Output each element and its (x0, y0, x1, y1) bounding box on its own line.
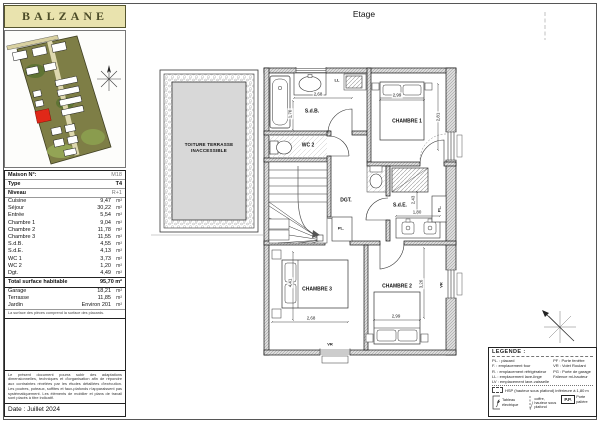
room-label-chambre3: CHAMBRE 3 (301, 287, 333, 293)
table-row: Dgt.4,49m² (5, 270, 125, 277)
table-row: WC 21,20m² (5, 263, 125, 270)
plan-sheet: BALZANE (0, 0, 600, 423)
dim-ch2-width: 2,99 (391, 313, 402, 319)
tag-closet-2: PL. (436, 205, 442, 213)
room-label-wc2: WC 2 (301, 143, 316, 149)
dim-ch1-width: 2,99 (392, 92, 403, 98)
dim-ch1-height: 2,81 (435, 112, 441, 123)
dim-ch3-width: 2,68 (306, 315, 317, 321)
table-row: Chambre 19,04m² (5, 220, 125, 227)
siteplan-compass-icon (97, 65, 121, 91)
table-row: JardinEnviron 201m² (5, 302, 125, 309)
legend-soffit: coffre, hauteur sous plafond (527, 395, 559, 411)
tag-washing-machine: LL (334, 77, 341, 83)
tag-closet-1: PL. (337, 225, 345, 231)
table-row: Chambre 211,78m² (5, 227, 125, 234)
table-row: Séjour30,22m² (5, 205, 125, 212)
table-row: S.d.B.4,55m² (5, 241, 125, 248)
highlighted-unit (35, 109, 51, 124)
dim-sdb-width: 2,68 (313, 91, 324, 97)
terrace-label: TOITURE TERRASSE INACCESSIBLE (181, 142, 237, 154)
table-row: S.d.E.4,13m² (5, 248, 125, 255)
disclaimer-text: Le présent document pourra subir des ada… (5, 370, 125, 403)
date-row: Date : Juillet 2024 (5, 403, 125, 416)
dim-ch3-height: 4,41 (287, 278, 293, 289)
surface-table: Maison N°:M18 TypeT4 NiveauR+1 Cuisine9,… (4, 170, 126, 417)
room-label-chambre1: CHAMBRE 1 (391, 119, 423, 125)
tag-shutter-ch3: VR (326, 341, 334, 347)
table-row: Chambre 311,55m² (5, 234, 125, 241)
table-row: Entrée5,54m² (5, 212, 125, 219)
table-row: Maison N°:M18 (5, 171, 125, 180)
dashed-box-icon (492, 387, 503, 393)
table-row: WC 13,73m² (5, 256, 125, 263)
legend-column-right: PF : Porte fenêtre VR : Volet Roulant PG… (553, 358, 593, 384)
room-label-sdb: S.d.B. (304, 109, 320, 115)
entry-door-icon: P.P. (561, 395, 574, 404)
compass-icon (542, 310, 576, 343)
electric-panel-icon (492, 395, 500, 410)
tag-shutter-ch2: VR (438, 281, 444, 289)
legend-electric-panel: Tableau électrique (492, 395, 524, 410)
page-title: Etage (128, 9, 600, 19)
legend-hsp-row: HSP (hauteur sous plafond) inférieure à … (492, 385, 593, 393)
legend-panel: LEGENDE : PL. : placard F. : emplacement… (488, 347, 597, 417)
soffit-icon (527, 395, 533, 411)
empty-panel (5, 318, 125, 370)
dim-sde-width: 1,80 (412, 209, 423, 215)
siteplan-thumbnail (4, 30, 126, 168)
legend-symbols-row: Tableau électrique coffre, hauteur sous … (492, 395, 593, 411)
dim-ch2-height: 3,26 (418, 279, 424, 290)
logo-text: BALZANE (22, 9, 108, 24)
surface-note: La surface des pièces comprend la surfac… (5, 309, 125, 318)
bathroom-fixtures (270, 73, 362, 128)
legend-column-left: PL. : placard F. : emplacement four R. :… (492, 358, 549, 384)
siteplan-drawing (5, 31, 125, 167)
table-row: NiveauR+1 (5, 189, 125, 198)
legend-title: LEGENDE : (492, 350, 593, 355)
table-row: Terrasse11,85m² (5, 295, 125, 302)
room-label-chambre2: CHAMBRE 2 (381, 284, 413, 290)
table-row: Cuisine9,47m² (5, 198, 125, 205)
room-label-dgt: DGT. (339, 198, 352, 204)
project-logo: BALZANE (4, 5, 126, 28)
table-row: TypeT4 (5, 180, 125, 189)
room-label-sde: S.d.E. (392, 203, 408, 209)
wc2-fixtures (269, 135, 327, 158)
dim-sdb-height: 1,70 (287, 109, 293, 120)
total-row: Total surface habitable95,70 m² (5, 277, 125, 288)
table-row: Garage18,21m² (5, 288, 125, 295)
dim-sde-height: 2,43 (410, 195, 416, 206)
legend-entry-door: P.P. Porte palière (561, 395, 593, 404)
